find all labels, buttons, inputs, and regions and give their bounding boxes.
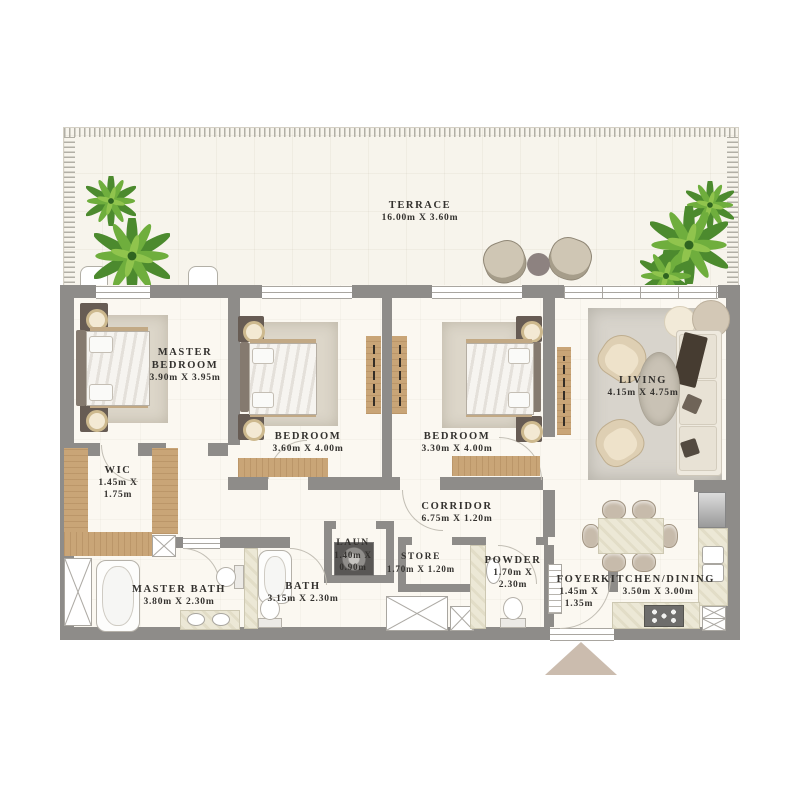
pillow [508, 348, 530, 364]
store-label: STORE 1.70m X 1.20m [387, 552, 455, 576]
pillow [508, 392, 530, 408]
bedroom-3-wardrobe [392, 336, 407, 414]
corridor-label: CORRIDOR 6.75m X 1.20m [421, 500, 492, 525]
pillow [252, 392, 274, 408]
room-name: BATH [267, 580, 338, 593]
wall-bed3-living [543, 298, 555, 437]
master-shower [64, 558, 92, 626]
window-bedroom-2 [262, 286, 352, 299]
master-bath-label: MASTER BATH 3.80m X 2.30m [132, 583, 226, 608]
wall-laundry-top [376, 521, 394, 529]
laundry-label: LAUN 1.40m X 0.90m [334, 538, 372, 573]
nightstand [80, 404, 108, 432]
terrace-edge-hatch-left [64, 137, 75, 288]
sink [187, 613, 205, 626]
utility-box [386, 596, 448, 631]
room-dims: 1.70m X [485, 567, 542, 579]
bath-label: BATH 3.15m X 2.30m [267, 580, 338, 605]
room-dims: 1.75m [98, 489, 137, 501]
wall-corridor-top [308, 477, 400, 490]
wall-top [60, 285, 96, 298]
room-name: BEDROOM [272, 430, 343, 443]
room-dims: 6.75m X 1.20m [421, 513, 492, 525]
wall-powder-top [536, 537, 548, 545]
room-dims: 3.60m X 4.00m [272, 443, 343, 455]
wall-kitchen-stub [694, 480, 726, 492]
nightstand [516, 416, 542, 442]
terrace-step [188, 266, 218, 287]
wic-closet [64, 532, 152, 556]
wall-top [522, 285, 564, 298]
room-name: LIVING [607, 374, 678, 387]
terrace-name: TERRACE [382, 199, 459, 212]
living-label: LIVING 4.15m X 4.75m [607, 374, 678, 399]
wall-powder-top [470, 537, 486, 545]
bedroom-2-label: BEDROOM 3.60m X 4.00m [272, 430, 343, 455]
bedroom-2-wardrobe [366, 336, 381, 414]
wall-bath-top [246, 537, 290, 548]
room-name: MASTER BEDROOM [139, 346, 231, 372]
dining-chair [602, 500, 626, 520]
room-dims: 1.45m X [557, 586, 602, 598]
wall-top [352, 285, 432, 298]
pillow [252, 348, 274, 364]
bath-marble-strip [244, 548, 258, 629]
room-dims: 2.30m [485, 579, 542, 591]
room-dims: 1.45m X [98, 477, 137, 489]
dining-chair [632, 500, 656, 520]
room-dims: 1.35m [557, 598, 602, 610]
wall-top [150, 285, 262, 298]
fridge [698, 492, 726, 528]
sink [212, 613, 230, 626]
room-dims: 0.90m [334, 562, 372, 574]
room-dims: 3.90m X 3.95m [139, 372, 231, 384]
shaft-box [152, 535, 176, 557]
bed-headboard [240, 342, 249, 412]
pillow [89, 384, 113, 401]
room-name: WIC [98, 464, 137, 477]
foyer-label: FOYER 1.45m X 1.35m [557, 573, 602, 611]
powder-label: POWDER 1.70m X 2.30m [485, 554, 542, 592]
room-name: BEDROOM [421, 430, 492, 443]
nightstand [238, 414, 264, 440]
room-name: FOYER [557, 573, 602, 586]
oven-box [702, 618, 726, 631]
entry-arrow [545, 642, 617, 675]
bed-headboard [76, 330, 86, 406]
toilet-bowl [503, 597, 523, 620]
terrace-side-table [527, 253, 550, 276]
wall-corridor-top [228, 477, 268, 490]
wic-closet [64, 448, 88, 534]
wall-corridor-living-stub [543, 490, 555, 537]
room-dims: 3.80m X 2.30m [132, 596, 226, 608]
room-dims: 1.70m X 1.20m [387, 564, 455, 576]
window-bedroom-3 [432, 286, 522, 299]
dining-chair [602, 552, 626, 572]
terrace-edge-hatch-top [64, 128, 738, 137]
room-dims: 3.30m X 4.00m [421, 443, 492, 455]
entry-door-threshold [550, 628, 614, 641]
stove [644, 605, 684, 627]
masterbath-door-opening [183, 538, 220, 549]
kitchen-sink [702, 546, 724, 564]
terrace-dims: 16.00m X 3.60m [382, 212, 459, 224]
room-name: CORRIDOR [421, 500, 492, 513]
room-dims: 4.15m X 4.75m [607, 387, 678, 399]
room-dims: 3.50m X 3.00m [601, 586, 715, 598]
room-name: MASTER BATH [132, 583, 226, 596]
dining-table [598, 518, 664, 554]
terrace-slider-living [564, 286, 718, 299]
wall-masterbath-top [220, 537, 246, 548]
kitchen-dining-label: KITCHEN/DINING 3.50m X 3.00m [601, 573, 715, 598]
wic-label: WIC 1.45m X 1.75m [98, 464, 137, 502]
bedroom-3-closet [452, 456, 540, 476]
wic-closet [152, 448, 178, 534]
terrace-label: TERRACE 16.00m X 3.60m [382, 199, 459, 224]
wall-store-top [452, 537, 470, 545]
room-name: LAUN [334, 538, 372, 550]
wall-store-bottom [398, 584, 470, 592]
wall-outer-right [726, 285, 740, 640]
wall-master-bottom [208, 443, 228, 456]
wall-laundry-top [324, 521, 336, 529]
room-dims: 3.15m X 2.30m [267, 593, 338, 605]
wall-bed2-bed3 [382, 298, 392, 477]
room-name: STORE [387, 552, 455, 564]
pillow [89, 336, 113, 353]
room-dims: 1.40m X [334, 550, 372, 562]
room-name: POWDER [485, 554, 542, 567]
floor-plan: TERRACE 16.00m X 3.60m [0, 0, 800, 800]
dining-chair [632, 552, 656, 572]
living-console [557, 347, 571, 435]
wall-top [718, 285, 740, 298]
master-bedroom-label: MASTER BEDROOM 3.90m X 3.95m [139, 346, 231, 385]
bedroom-2-closet [238, 458, 328, 477]
plant-icon [94, 218, 170, 294]
terrace-door-master [96, 286, 150, 299]
bedroom-3-label: BEDROOM 3.30m X 4.00m [421, 430, 492, 455]
room-name: KITCHEN/DINING [601, 573, 715, 586]
